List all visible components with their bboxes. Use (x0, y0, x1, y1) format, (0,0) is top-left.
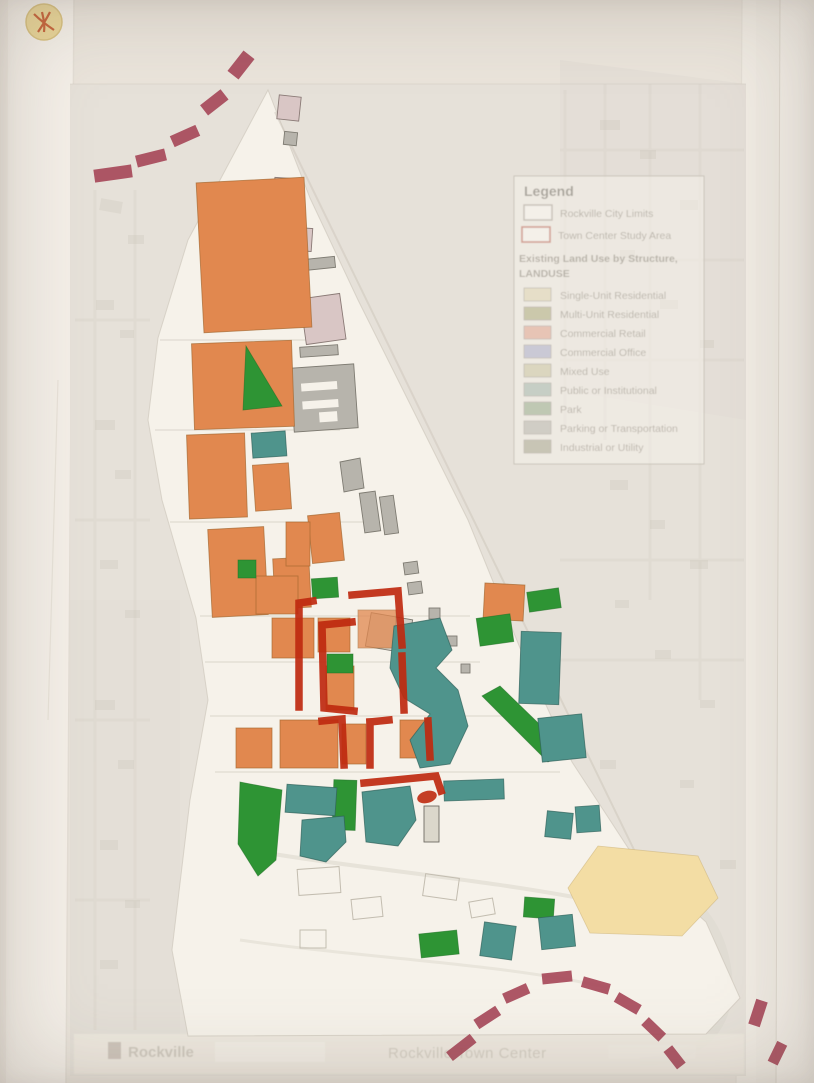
round-sticker (26, 4, 62, 40)
photo-of-hand-colored-land-use-map: Legend Rockville City Limits Town Center… (0, 0, 814, 1083)
map-drawing: Legend Rockville City Limits Town Center… (0, 0, 814, 1083)
